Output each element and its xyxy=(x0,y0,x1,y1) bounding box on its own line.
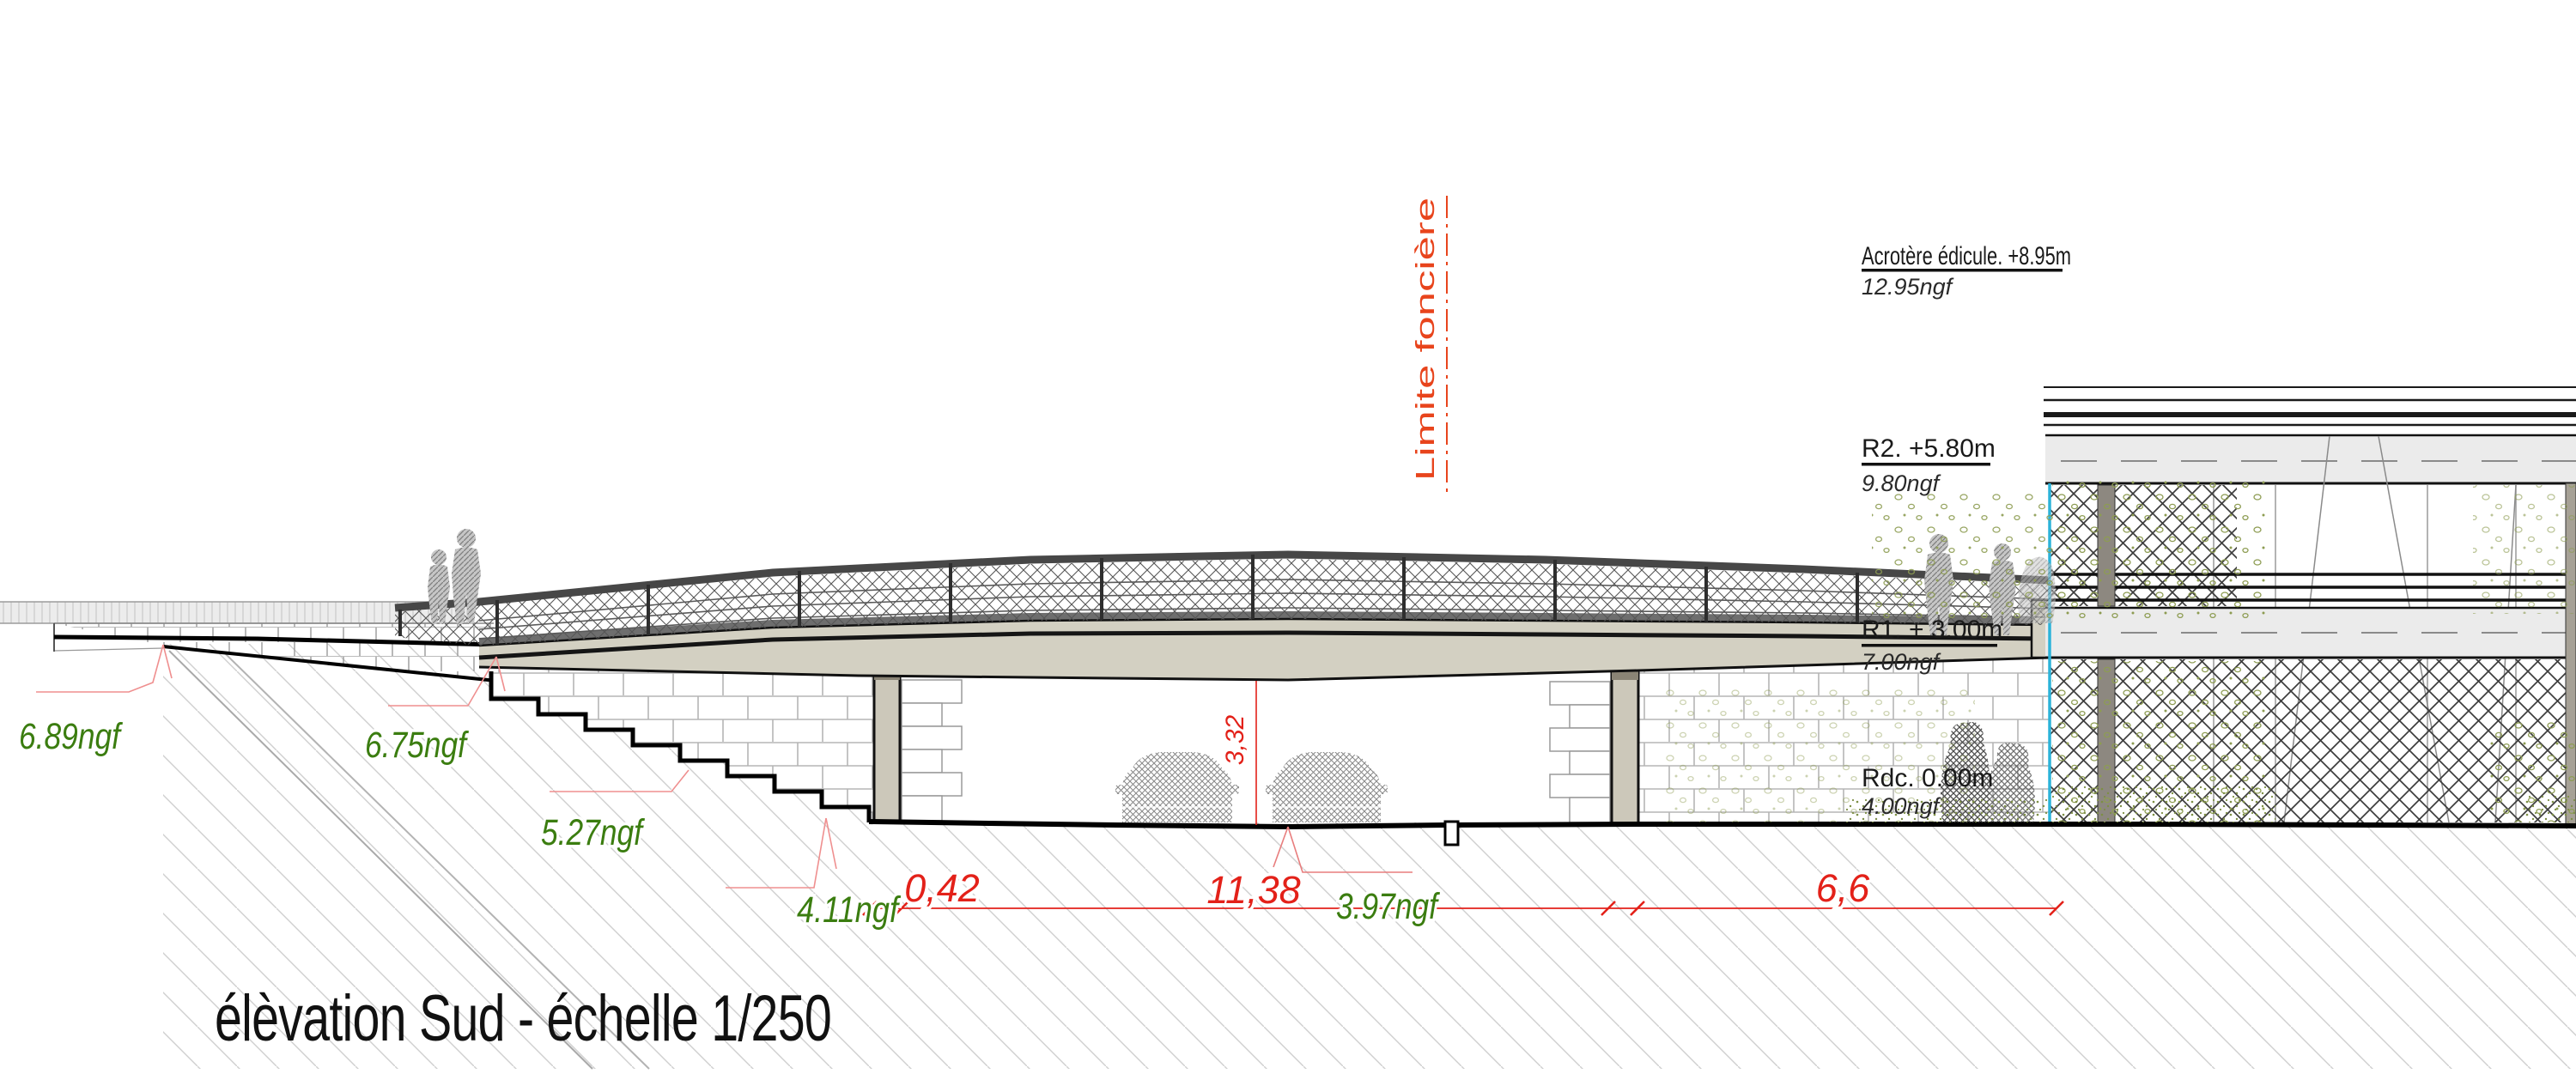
spot-397: 3.97ngf xyxy=(1336,886,1440,927)
dim-1138: 11,38 xyxy=(1206,868,1300,912)
elevation-drawing: Limite foncière 3,32 0,42 11,38 6,6 6.89… xyxy=(0,0,2576,1080)
person-head xyxy=(457,529,476,548)
level-r1-ngf: 7.00ngf xyxy=(1862,649,1941,675)
south-elevation-canvas: Limite foncière 3,32 0,42 11,38 6,6 6.89… xyxy=(0,0,2576,1080)
level-r2-ngf: 9.80ngf xyxy=(1862,470,1941,496)
spot-689: 6.89ngf xyxy=(19,716,123,757)
level-rdc-ngf: 4.00ngf xyxy=(1862,793,1941,819)
spot-675: 6.75ngf xyxy=(365,725,469,766)
drawing-title: élèvation Sud - échelle 1/250 xyxy=(215,982,831,1055)
slab-r2 xyxy=(2045,435,2576,483)
level-underline xyxy=(1862,644,1997,647)
property-boundary: Limite foncière xyxy=(1410,196,1447,494)
floor-joint xyxy=(1445,822,1458,845)
spot-527: 5.27ngf xyxy=(541,812,645,853)
clear-height-value: 3,32 xyxy=(1221,714,1249,765)
spot-411: 4.11ngf xyxy=(797,889,901,931)
person-head xyxy=(431,549,447,565)
dim-66: 6,6 xyxy=(1816,866,1871,910)
pillar-left xyxy=(874,669,900,822)
boundary-label: Limite foncière xyxy=(1410,197,1440,481)
level-underline xyxy=(1862,269,2063,272)
level-underline xyxy=(1862,463,1990,466)
level-rdc-label: Rdc. 0.00m xyxy=(1862,764,1993,792)
pillar-right xyxy=(1612,669,1638,824)
dim-042: 0,42 xyxy=(904,866,980,910)
level-acrotere-label: Acrotère édicule. +8.95m xyxy=(1862,242,2071,270)
level-r2-label: R2. +5.80m xyxy=(1862,434,1996,463)
level-acrotere-ngf: 12.95ngf xyxy=(1862,274,1954,300)
level-r1-label: R1. + 3.00m xyxy=(1862,616,2002,644)
